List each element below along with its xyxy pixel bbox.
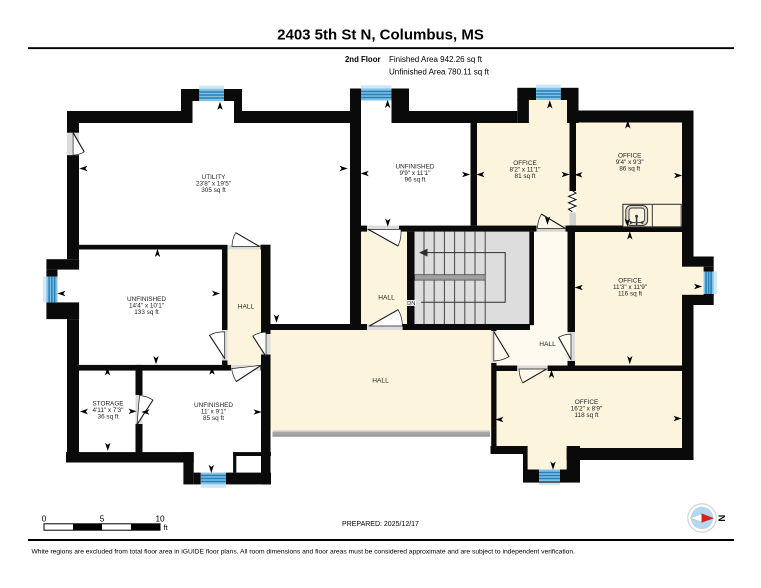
- svg-text:36 sq ft: 36 sq ft: [98, 414, 119, 421]
- svg-text:118 sq ft: 118 sq ft: [574, 412, 598, 419]
- svg-text:HALL: HALL: [372, 378, 389, 385]
- svg-text:HALL: HALL: [539, 341, 556, 348]
- svg-text:Unfinished Area 780.11 sq ft: Unfinished Area 780.11 sq ft: [389, 68, 490, 77]
- svg-text:HALL: HALL: [378, 295, 395, 302]
- svg-text:White regions are excluded fro: White regions are excluded from total fl…: [32, 549, 576, 556]
- svg-text:Finished Area 942.26 sq ft: Finished Area 942.26 sq ft: [389, 55, 483, 64]
- svg-text:0: 0: [42, 515, 47, 524]
- svg-text:DN: DN: [407, 301, 415, 307]
- svg-text:116 sq ft: 116 sq ft: [618, 291, 642, 298]
- svg-text:96 sq ft: 96 sq ft: [405, 177, 426, 184]
- svg-text:PREPARED: 2025/12/17: PREPARED: 2025/12/17: [342, 521, 419, 528]
- svg-text:2nd Floor: 2nd Floor: [345, 55, 381, 64]
- svg-text:81 sq ft: 81 sq ft: [515, 173, 536, 180]
- svg-text:305 sq ft: 305 sq ft: [201, 187, 226, 194]
- svg-text:85 sq ft: 85 sq ft: [203, 415, 224, 422]
- svg-text:86 sq ft: 86 sq ft: [619, 166, 640, 173]
- svg-text:2403 5th St N, Columbus, MS: 2403 5th St N, Columbus, MS: [277, 27, 484, 44]
- svg-text:N: N: [715, 515, 726, 522]
- svg-text:133 sq ft: 133 sq ft: [134, 309, 159, 316]
- svg-text:HALL: HALL: [238, 304, 255, 311]
- svg-text:5: 5: [100, 515, 105, 524]
